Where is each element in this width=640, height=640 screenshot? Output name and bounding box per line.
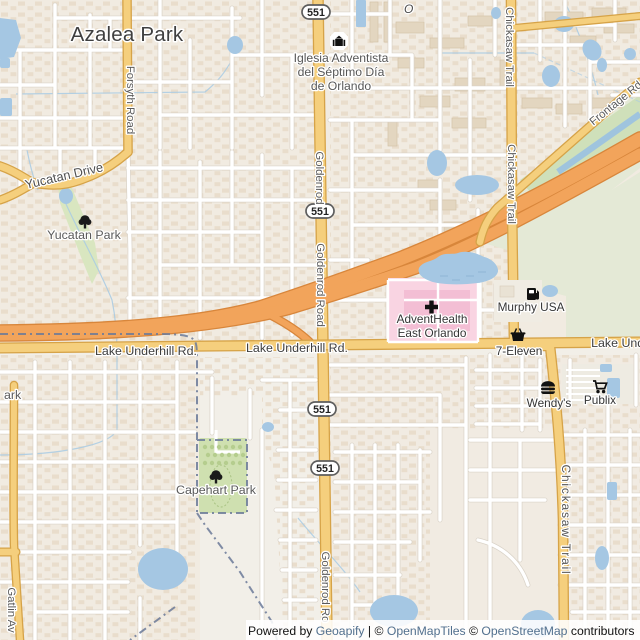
svg-text:ark: ark [4,388,22,402]
svg-text:Lake Underhill Rd.: Lake Underhill Rd. [95,344,197,358]
svg-text:Gatlin Av: Gatlin Av [5,587,17,633]
svg-text:Iglesia Adventista: Iglesia Adventista [294,51,389,65]
svg-text:Lake Underhi: Lake Underhi [591,336,640,350]
svg-text:Chickasaw Trail: Chickasaw Trail [559,464,573,575]
svg-text:AdventHealth: AdventHealth [397,312,468,326]
svg-text:Powered by Geoapify | © OpenMa: Powered by Geoapify | © OpenMapTiles © O… [248,624,635,638]
svg-text:Goldenrod: Goldenrod [313,151,325,204]
svg-text:Forsyth Road: Forsyth Road [124,66,136,134]
svg-text:O: O [404,2,413,16]
svg-text:Yucatan Park: Yucatan Park [47,228,122,242]
svg-text:Publix: Publix [584,393,616,407]
svg-text:551: 551 [313,404,331,416]
svg-text:Azalea Park: Azalea Park [71,23,184,46]
svg-text:Chickasaw Trail: Chickasaw Trail [503,7,515,87]
svg-text:551: 551 [307,7,325,19]
svg-text:7-Eleven: 7-Eleven [496,344,543,358]
svg-text:Goldenrod Road: Goldenrod Road [314,243,326,327]
svg-text:Chickasaw Trail: Chickasaw Trail [505,144,517,224]
svg-text:Murphy USA: Murphy USA [498,300,565,314]
svg-text:East Orlando: East Orlando [398,326,467,340]
svg-text:551: 551 [311,206,329,218]
svg-text:del Séptimo Día: del Séptimo Día [298,65,385,79]
svg-text:de Orlando: de Orlando [311,79,372,93]
svg-text:551: 551 [316,463,334,475]
svg-text:Lake Underhill Rd.: Lake Underhill Rd. [246,341,348,355]
svg-text:Goldenrod Ro: Goldenrod Ro [319,552,331,623]
svg-text:Capehart Park: Capehart Park [176,483,257,497]
svg-text:Wendy's: Wendy's [527,396,572,410]
